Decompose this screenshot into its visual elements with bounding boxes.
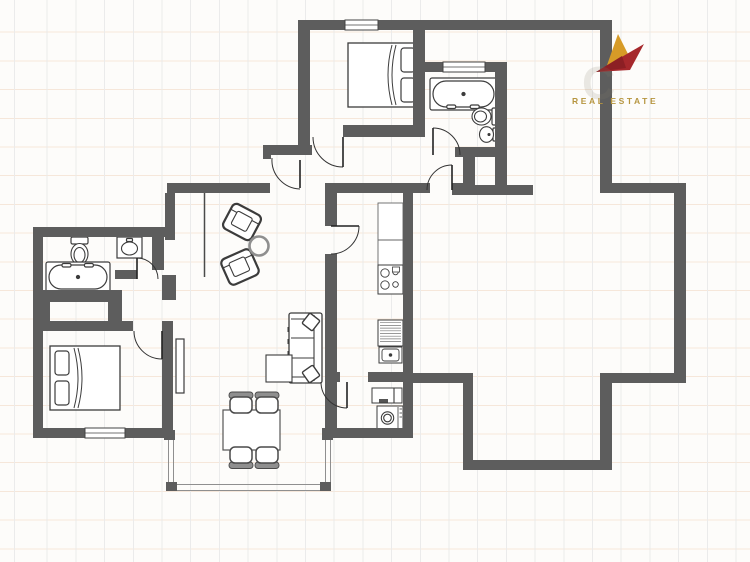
wall-segment: [674, 183, 686, 383]
stove: [378, 265, 403, 294]
wall-segment: [463, 460, 612, 470]
wall-segment: [325, 193, 337, 226]
side-table: [250, 237, 269, 256]
wall-segment: [152, 237, 164, 270]
wall-segment: [33, 302, 50, 321]
dining-table: [223, 410, 280, 450]
wall-segment: [263, 145, 271, 159]
wall-segment: [600, 20, 612, 192]
window: [443, 62, 485, 72]
washing-machine: [377, 406, 403, 430]
laundry-cabinet: [372, 388, 402, 403]
door: [272, 158, 300, 189]
wall-segment: [600, 373, 612, 470]
dining-chair: [229, 392, 253, 413]
dining-chair: [255, 392, 279, 413]
wall-segment: [165, 193, 175, 240]
sofa: [289, 313, 323, 383]
wall-segment: [413, 30, 425, 137]
bathtub: [46, 262, 110, 292]
wall-segment: [33, 321, 133, 331]
wall-segment: [612, 373, 674, 383]
window: [85, 428, 125, 438]
wall-segment: [403, 193, 413, 428]
wall-segment: [455, 147, 507, 157]
wall-segment: [455, 185, 533, 195]
toilet: [71, 237, 88, 265]
wall-segment: [322, 428, 413, 438]
door: [331, 226, 359, 254]
wall-segment: [167, 183, 270, 193]
wall-segment: [343, 125, 423, 137]
tv-board: [176, 339, 184, 393]
vanity-sink: [117, 237, 142, 258]
floor-plan-drawing: [0, 0, 750, 562]
wall-segment: [403, 373, 473, 383]
wall-segment: [452, 183, 463, 195]
wall-segment: [298, 30, 310, 153]
wall-segment: [495, 72, 507, 195]
double-bed: [50, 346, 120, 410]
wall-segment: [33, 237, 43, 438]
wall-segment: [463, 157, 475, 185]
floor-plan-canvas: C REAL ESTATE: [0, 0, 750, 562]
wall-segment: [325, 372, 340, 382]
door: [134, 331, 162, 359]
wall-segment: [162, 275, 176, 300]
door: [427, 165, 452, 190]
double-bed: [348, 43, 420, 107]
dining-chair: [255, 447, 279, 469]
door: [313, 137, 343, 167]
upper-cabinet: [378, 203, 403, 265]
wall-segment: [115, 270, 137, 279]
wall-segment: [368, 372, 403, 382]
wall-segment: [463, 383, 473, 460]
wall-segment: [325, 254, 337, 372]
window: [345, 20, 378, 30]
coffee-table: [266, 355, 292, 382]
wall-segment: [600, 183, 686, 193]
wall-segment: [108, 300, 122, 321]
dining-chair: [229, 447, 253, 469]
bathtub: [430, 78, 497, 110]
wall-segment: [162, 321, 173, 438]
wall-segment: [33, 227, 165, 237]
wall-segment: [325, 183, 430, 193]
kitchen-sink: [378, 320, 403, 363]
